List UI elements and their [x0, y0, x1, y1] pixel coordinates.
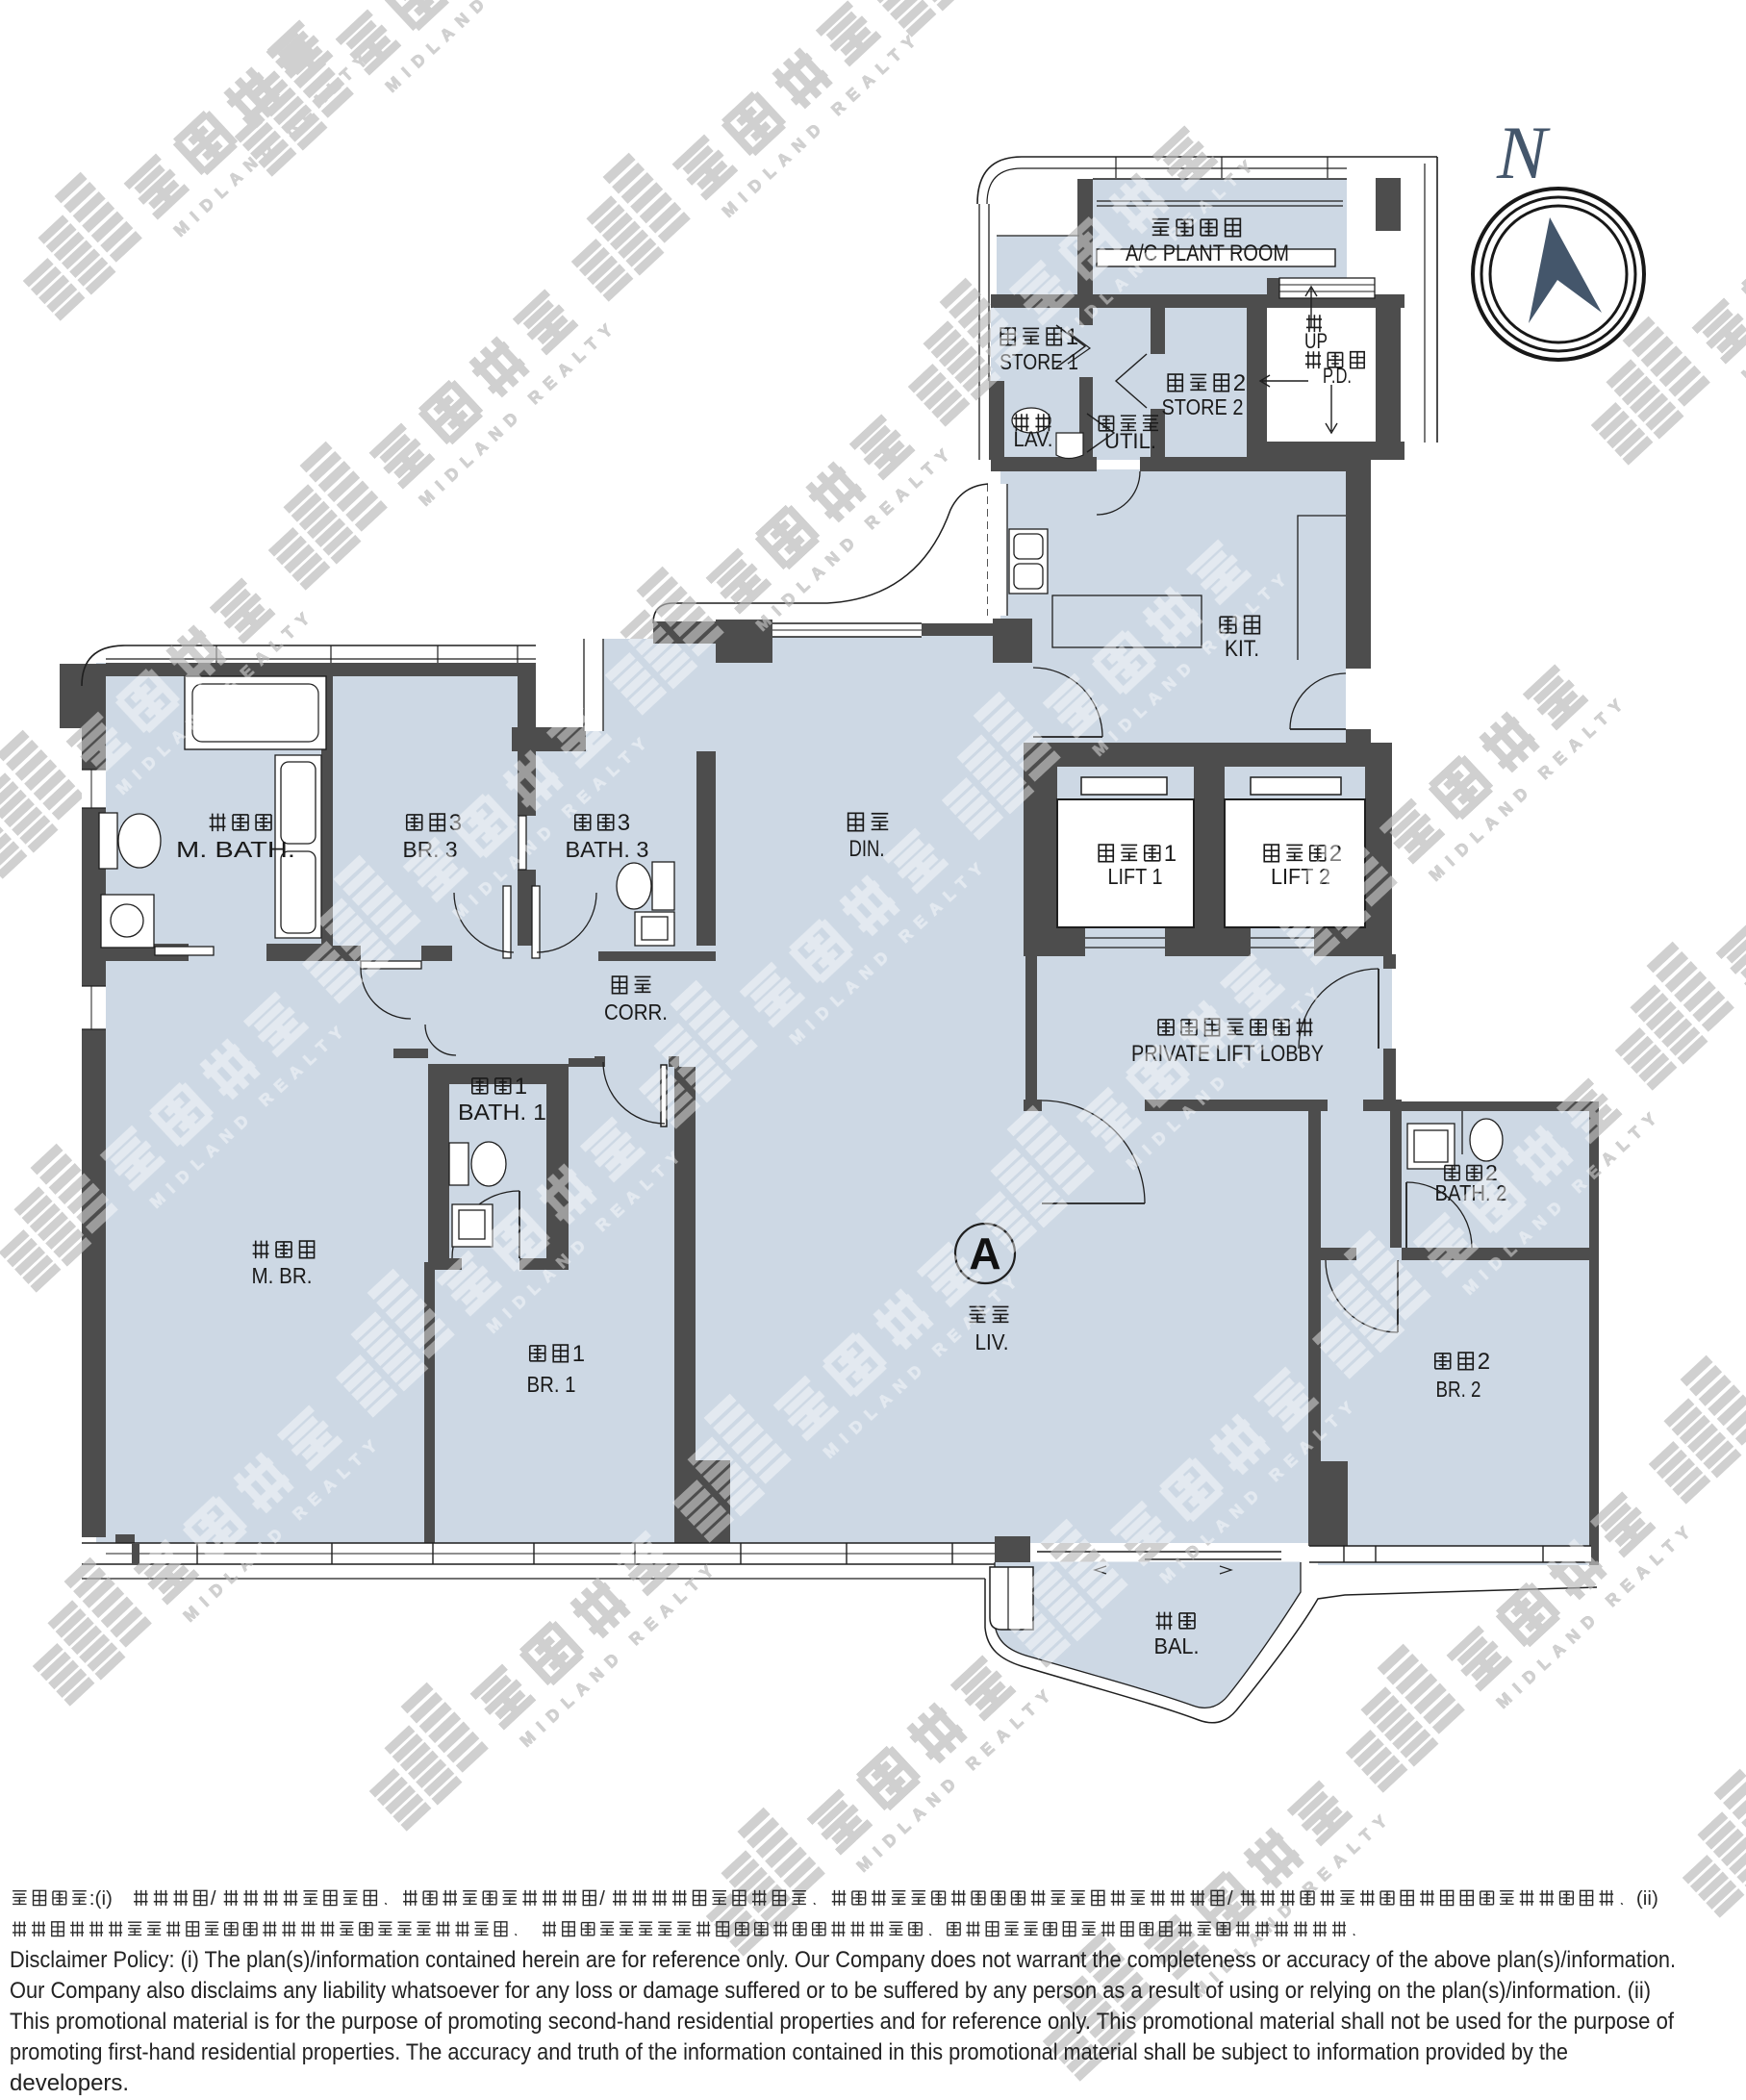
svg-text:LIV.: LIV. — [975, 1329, 1009, 1354]
svg-text:This promotional material is f: This promotional material is for the pur… — [10, 2009, 1674, 2035]
svg-text:CORR.: CORR. — [604, 999, 668, 1025]
svg-text:promoting first-hand residenti: promoting first-hand residential propert… — [10, 2039, 1568, 2065]
svg-text:LIFT 1: LIFT 1 — [1108, 864, 1163, 889]
svg-text::(i): :(i) — [89, 1887, 113, 1910]
svg-text:BR. 2: BR. 2 — [1436, 1377, 1481, 1402]
svg-text:LAV.: LAV. — [1014, 427, 1053, 451]
svg-text:3: 3 — [618, 810, 630, 836]
svg-text:UP: UP — [1304, 329, 1328, 353]
svg-text:N: N — [1496, 111, 1551, 194]
svg-text:M. BATH.: M. BATH. — [176, 837, 295, 862]
svg-text:BAL.: BAL. — [1154, 1633, 1200, 1658]
svg-text:1: 1 — [572, 1341, 585, 1367]
svg-text:BATH. 3: BATH. 3 — [566, 837, 649, 862]
svg-text:1: 1 — [515, 1074, 527, 1100]
svg-text:BATH. 1: BATH. 1 — [458, 1100, 546, 1125]
svg-text:developers.: developers. — [10, 2070, 129, 2096]
svg-text:2: 2 — [1233, 370, 1246, 396]
svg-text:(ii): (ii) — [1636, 1887, 1658, 1910]
svg-text:Our Company also disclaims any: Our Company also disclaims any liability… — [10, 1978, 1651, 2004]
svg-text:/: / — [211, 1887, 216, 1910]
svg-text:/: / — [1227, 1887, 1233, 1910]
svg-text:2: 2 — [1478, 1349, 1490, 1375]
svg-text:STORE 2: STORE 2 — [1162, 394, 1244, 419]
svg-text:DIN.: DIN. — [849, 836, 885, 862]
svg-text:UTIL.: UTIL. — [1104, 429, 1156, 453]
svg-text:Disclaimer Policy: (i) The pla: Disclaimer Policy: (i) The plan(s)/infor… — [10, 1947, 1676, 1973]
svg-text:/: / — [599, 1887, 605, 1910]
svg-text:P.D.: P.D. — [1323, 364, 1352, 388]
svg-text:1: 1 — [1164, 841, 1177, 867]
svg-text:BR. 1: BR. 1 — [527, 1372, 576, 1397]
svg-text:M. BR.: M. BR. — [252, 1263, 313, 1288]
